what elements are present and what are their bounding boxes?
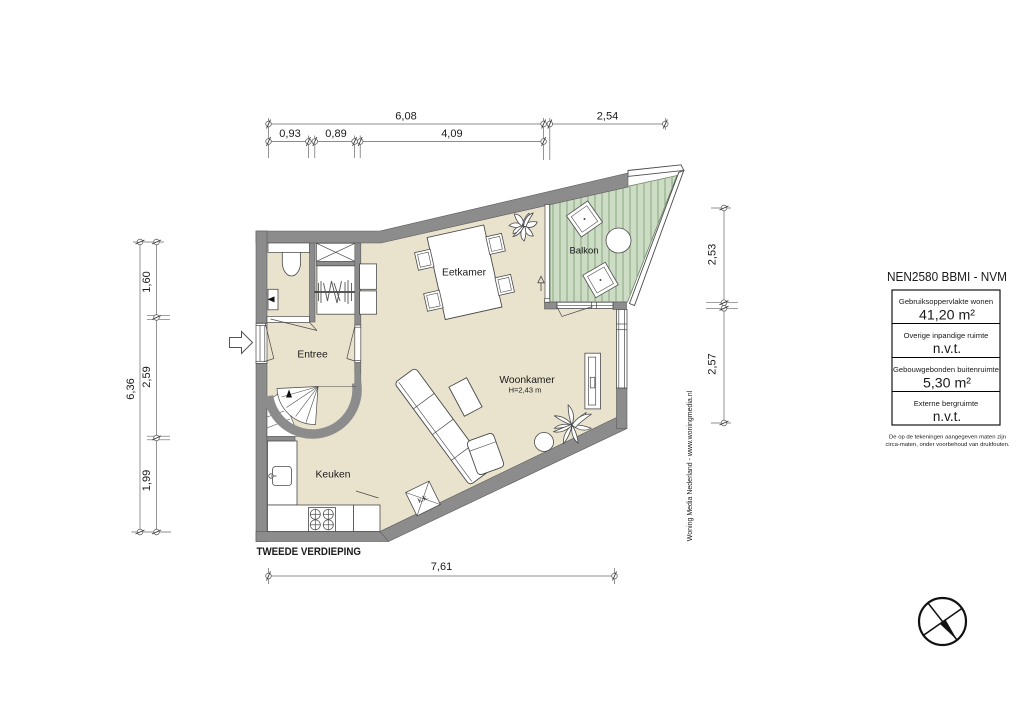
svg-text:H=2,43 m: H=2,43 m <box>509 386 542 395</box>
svg-text:6,36: 6,36 <box>125 378 137 399</box>
svg-text:41,20 m²: 41,20 m² <box>919 308 975 324</box>
svg-text:0,93: 0,93 <box>279 128 300 140</box>
svg-text:Woning Media Nederland - www.w: Woning Media Nederland - www.woningmedia… <box>687 390 694 541</box>
svg-text:2,54: 2,54 <box>597 111 618 123</box>
svg-text:4,09: 4,09 <box>441 128 462 140</box>
svg-text:Externe bergruimte: Externe bergruimte <box>914 399 979 408</box>
svg-text:Keuken: Keuken <box>316 470 351 481</box>
svg-text:1,60: 1,60 <box>141 271 153 292</box>
svg-text:2,59: 2,59 <box>141 366 153 387</box>
svg-text:Woonkamer: Woonkamer <box>499 375 555 386</box>
svg-text:Entree: Entree <box>297 350 328 361</box>
svg-text:2,53: 2,53 <box>707 244 719 265</box>
svg-text:NEN2580 BBMI - NVM: NEN2580 BBMI - NVM <box>887 269 1007 284</box>
svg-text:2,57: 2,57 <box>707 353 719 374</box>
svg-text:Overige inpandige ruimte: Overige inpandige ruimte <box>904 331 989 340</box>
svg-text:Gebouwgebonden buitenruimte: Gebouwgebonden buitenruimte <box>893 365 999 374</box>
svg-text:Gebruiksoppervlakte wonen: Gebruiksoppervlakte wonen <box>899 297 993 306</box>
svg-text:circa-maten, onder voorbehoud: circa-maten, onder voorbehoud van drukfo… <box>885 442 1009 448</box>
svg-text:5,30 m²: 5,30 m² <box>923 376 971 392</box>
svg-text:TWEEDE VERDIEPING: TWEEDE VERDIEPING <box>257 546 362 558</box>
svg-text:Eetkamer: Eetkamer <box>442 268 487 279</box>
svg-text:7,61: 7,61 <box>431 561 452 573</box>
svg-text:n.v.t.: n.v.t. <box>933 341 961 356</box>
svg-text:Balkon: Balkon <box>569 246 598 257</box>
svg-text:n.v.t.: n.v.t. <box>933 409 961 424</box>
svg-text:0,89: 0,89 <box>325 128 346 140</box>
svg-text:6,08: 6,08 <box>395 111 416 123</box>
svg-text:1,99: 1,99 <box>141 470 153 491</box>
svg-text:De op de tekeningen aangegeven: De op de tekeningen aangegeven maten zij… <box>889 435 1006 441</box>
